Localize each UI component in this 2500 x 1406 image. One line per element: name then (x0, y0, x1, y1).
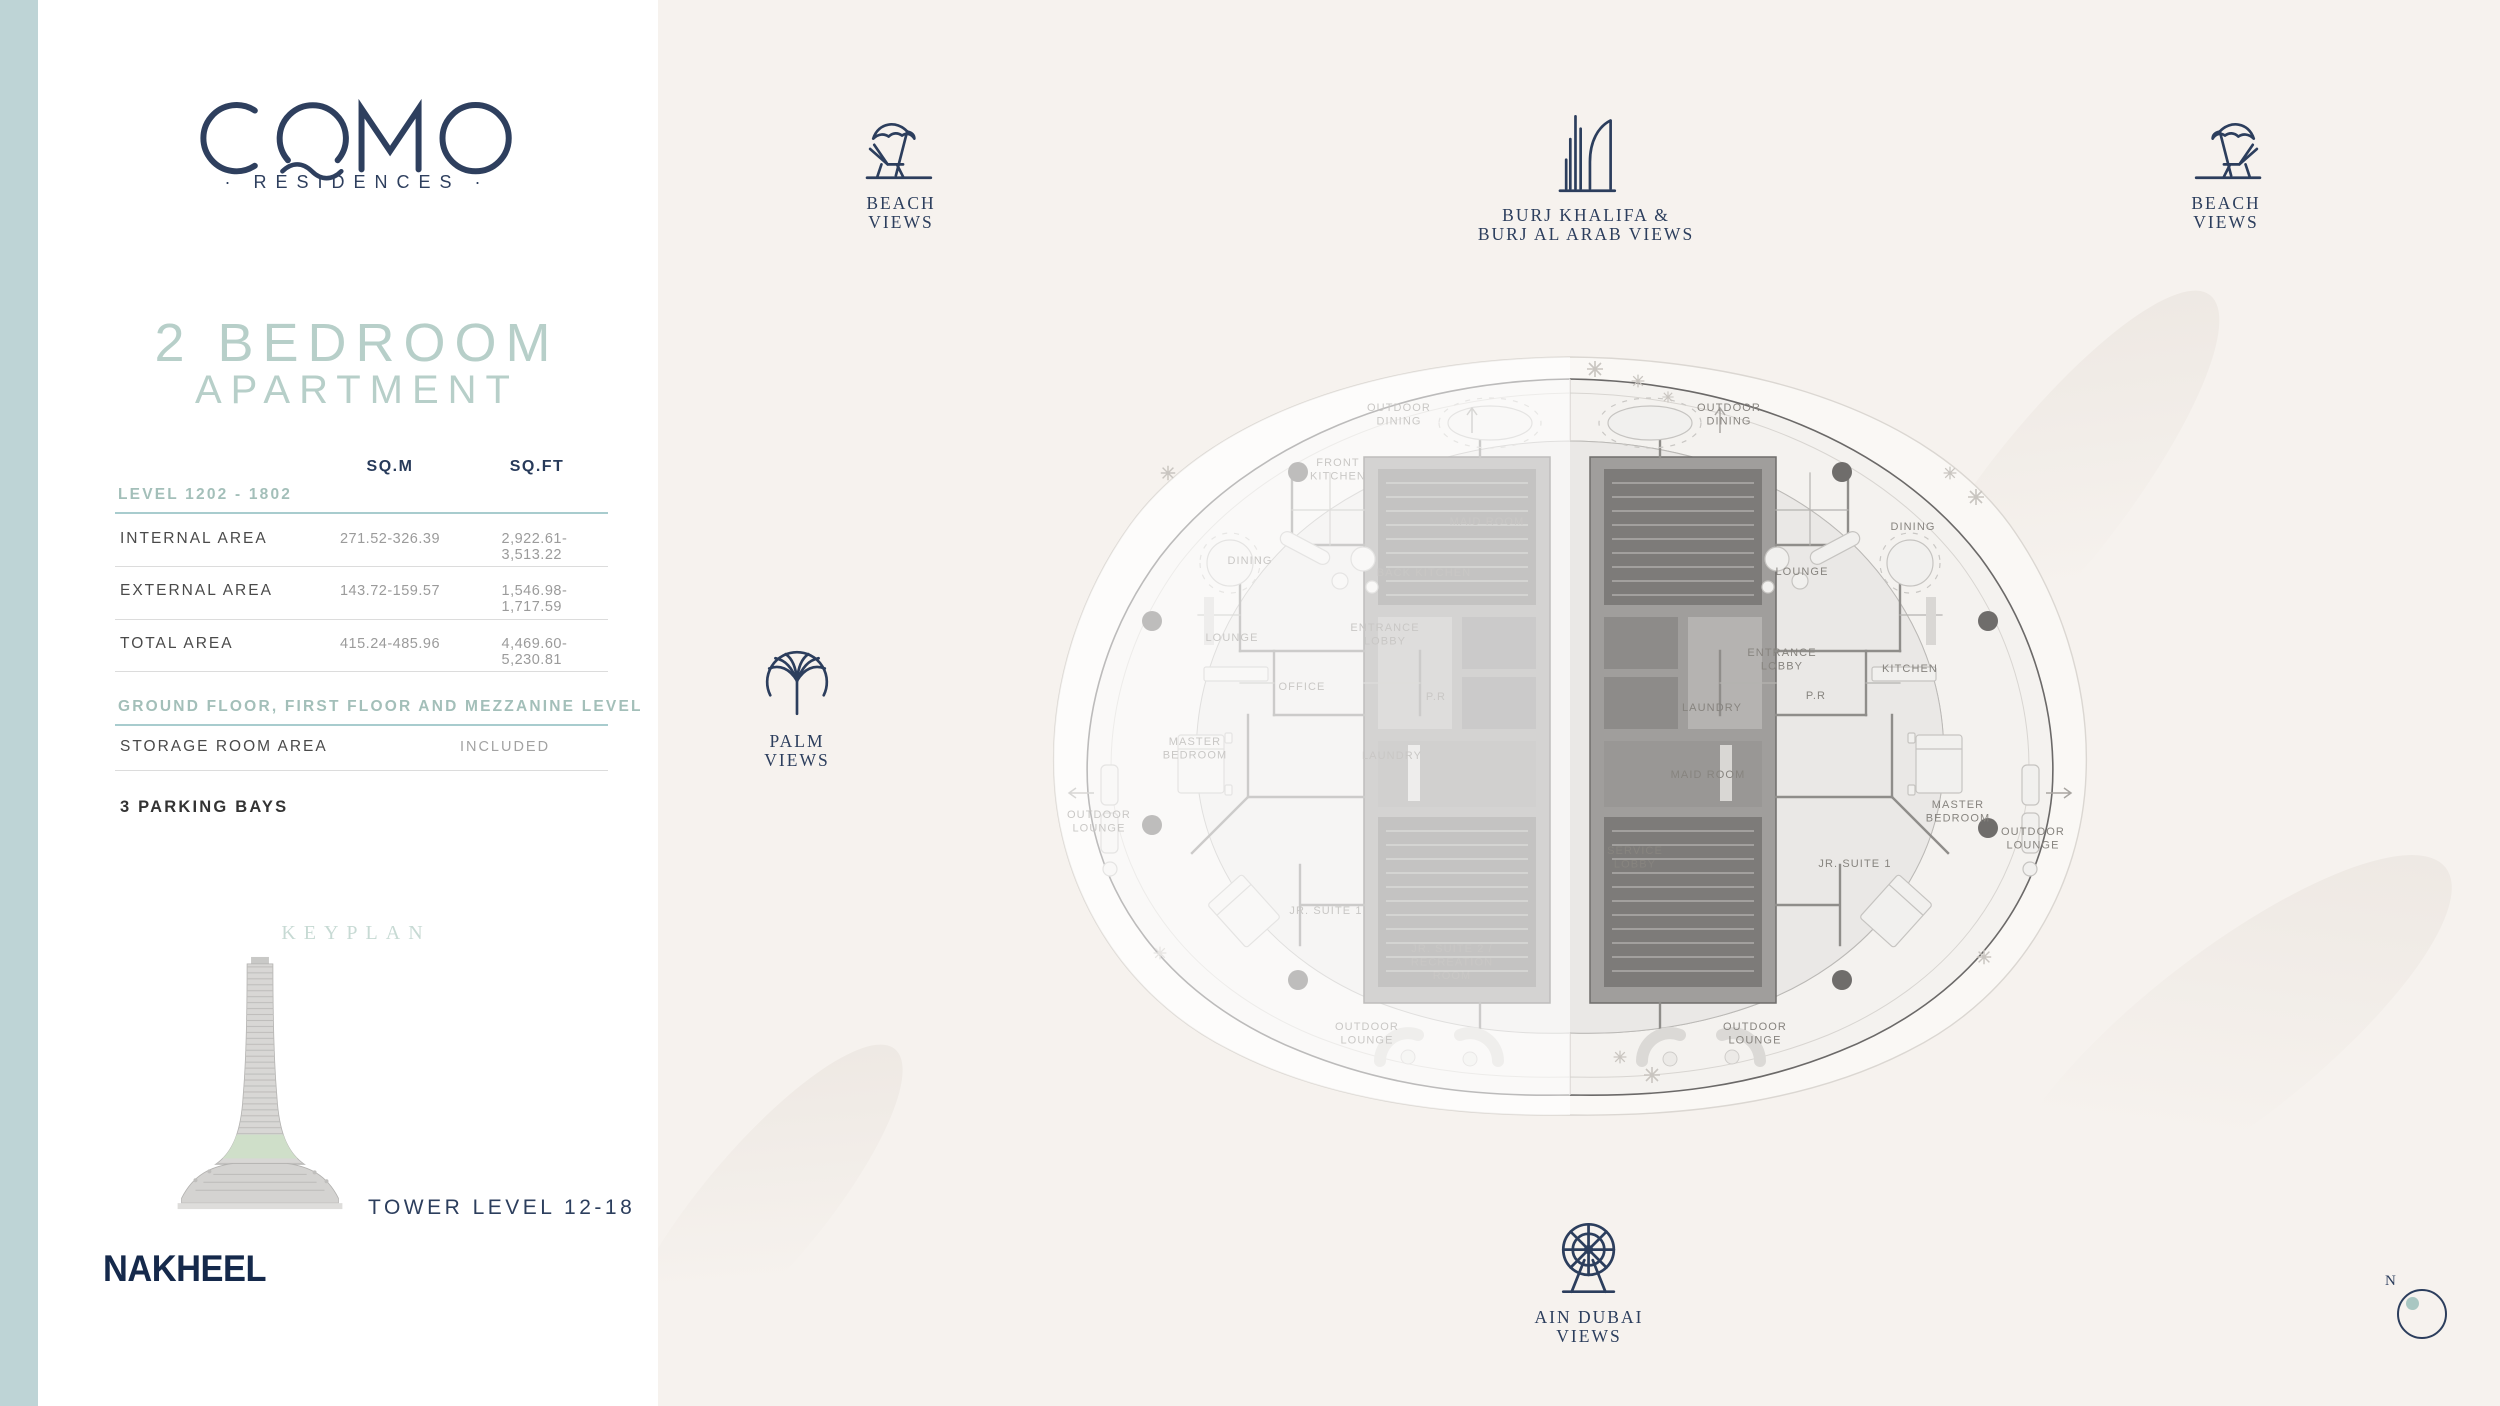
view-caption: VIEWS (1535, 1327, 1644, 1346)
nakheel-logo: NAKHEEL (103, 1248, 266, 1290)
row-sqm: 143.72-159.57 (340, 583, 440, 599)
row-label: EXTERNAL AREA (120, 582, 273, 600)
view-caption: VIEWS (761, 751, 833, 770)
tower-level-label: TOWER LEVEL 12-18 (368, 1196, 635, 1220)
divider (115, 619, 608, 620)
ferris-wheel-icon (1555, 1218, 1623, 1298)
view-marker-beach-left: BEACH VIEWS (865, 118, 937, 232)
row-sqft: 1,546.98-1,717.59 (502, 583, 573, 615)
row-label: INTERNAL AREA (120, 530, 268, 548)
page-title: 2 BEDROOM (38, 312, 667, 374)
room-label-r-service-lobby: SERVICELOBBY (1607, 845, 1663, 871)
room-label-r-outdoor-dining: OUTDOORDINING (1697, 402, 1761, 428)
table-row: EXTERNAL AREA 143.72-159.57 1,546.98-1,7… (115, 582, 608, 604)
palm-jumeirah-icon (761, 650, 833, 722)
view-caption: BEACH (2190, 194, 2262, 213)
table-row: TOTAL AREA 415.24-485.96 4,469.60-5,230.… (115, 635, 608, 657)
row-sqft: 2,922.61-3,513.22 (502, 531, 573, 563)
level-heading: LEVEL 1202 - 1802 (118, 486, 292, 504)
compass-dot (2406, 1297, 2419, 1310)
floor-plan: OUTDOORDININGFRONTKITCHENDININGMAID ROOM… (1020, 345, 2120, 1135)
parking-note: 3 PARKING BAYS (120, 798, 288, 817)
logo-residences: · RESIDENCES · (38, 172, 667, 193)
room-label-r-kitchen: KITCHEN (1882, 663, 1938, 675)
view-caption: AIN DUBAI (1535, 1308, 1644, 1327)
logo-letter-o-wave (280, 105, 346, 160)
view-caption: VIEWS (2190, 213, 2262, 232)
room-label-r-dining: DINING (1890, 521, 1935, 533)
beach-umbrella-icon (2190, 118, 2262, 184)
burj-khalifa-icon (1555, 108, 1617, 196)
row-sqm: 271.52-326.39 (340, 531, 440, 547)
left-unit-fade-overlay (1020, 345, 1570, 1135)
tower-highlight-band (217, 1135, 302, 1159)
storage-label: STORAGE ROOM AREA (120, 738, 328, 756)
floor-heading: GROUND FLOOR, FIRST FLOOR AND MEZZANINE … (118, 698, 643, 716)
row-sqft: 4,469.60-5,230.81 (502, 636, 573, 668)
view-caption: BURJ KHALIFA & (1478, 206, 1694, 225)
compass-north-label: N (2385, 1273, 2396, 1290)
keyplan-heading: KEYPLAN (38, 922, 666, 945)
room-label-r-master-bedroom: MASTERBEDROOM (1926, 799, 1991, 825)
logo-letter-o2 (443, 105, 509, 171)
compass: N (2397, 1289, 2447, 1339)
room-label-r-outdoor-lounge-south: OUTDOORLOUNGE (1723, 1021, 1787, 1047)
storage-row: STORAGE ROOM AREA INCLUDED (115, 738, 608, 760)
divider (115, 671, 608, 672)
view-caption: BEACH (865, 194, 937, 213)
divider (115, 566, 608, 567)
view-caption: BURJ AL ARAB VIEWS (1478, 225, 1694, 244)
view-marker-palm: PALM VIEWS (761, 650, 833, 770)
room-label-r-pr: P.R (1806, 690, 1826, 702)
beach-umbrella-icon (865, 118, 937, 184)
row-label: TOTAL AREA (120, 635, 234, 653)
storage-value: INCLUDED (460, 739, 550, 755)
column-header-sqm: SQ.M (367, 458, 414, 476)
divider (115, 512, 608, 514)
room-label-r-outdoor-lounge-east: OUTDOORLOUNGE (2001, 826, 2065, 852)
view-marker-burj: BURJ KHALIFA & BURJ AL ARAB VIEWS (1478, 108, 1694, 244)
tower-base (182, 1163, 339, 1203)
divider (115, 724, 608, 726)
row-sqm: 415.24-485.96 (340, 636, 440, 652)
room-label-r-maid-room: MAID ROOM (1671, 769, 1746, 781)
keyplan-tower (165, 952, 355, 1220)
view-marker-ain-dubai: AIN DUBAI VIEWS (1535, 1218, 1644, 1346)
column-header-sqft: SQ.FT (510, 458, 565, 476)
room-label-r-jr-suite-1: JR. SUITE 1 (1818, 858, 1891, 870)
table-row: INTERNAL AREA 271.52-326.39 2,922.61-3,5… (115, 530, 608, 552)
view-caption: PALM (761, 732, 833, 751)
logo-letter-c (203, 105, 254, 171)
view-caption: VIEWS (865, 213, 937, 232)
page-subtitle: APARTMENT (38, 368, 667, 413)
view-marker-beach-right: BEACH VIEWS (2190, 118, 2262, 232)
room-label-r-lounge: LOUNGE (1775, 566, 1828, 578)
room-label-r-laundry: LAUNDRY (1682, 702, 1742, 714)
logo-letter-m (362, 109, 419, 170)
brochure-page: · RESIDENCES · 2 BEDROOM APARTMENT SQ.M … (0, 0, 2500, 1406)
left-accent-band (0, 0, 38, 1406)
divider (115, 770, 608, 771)
